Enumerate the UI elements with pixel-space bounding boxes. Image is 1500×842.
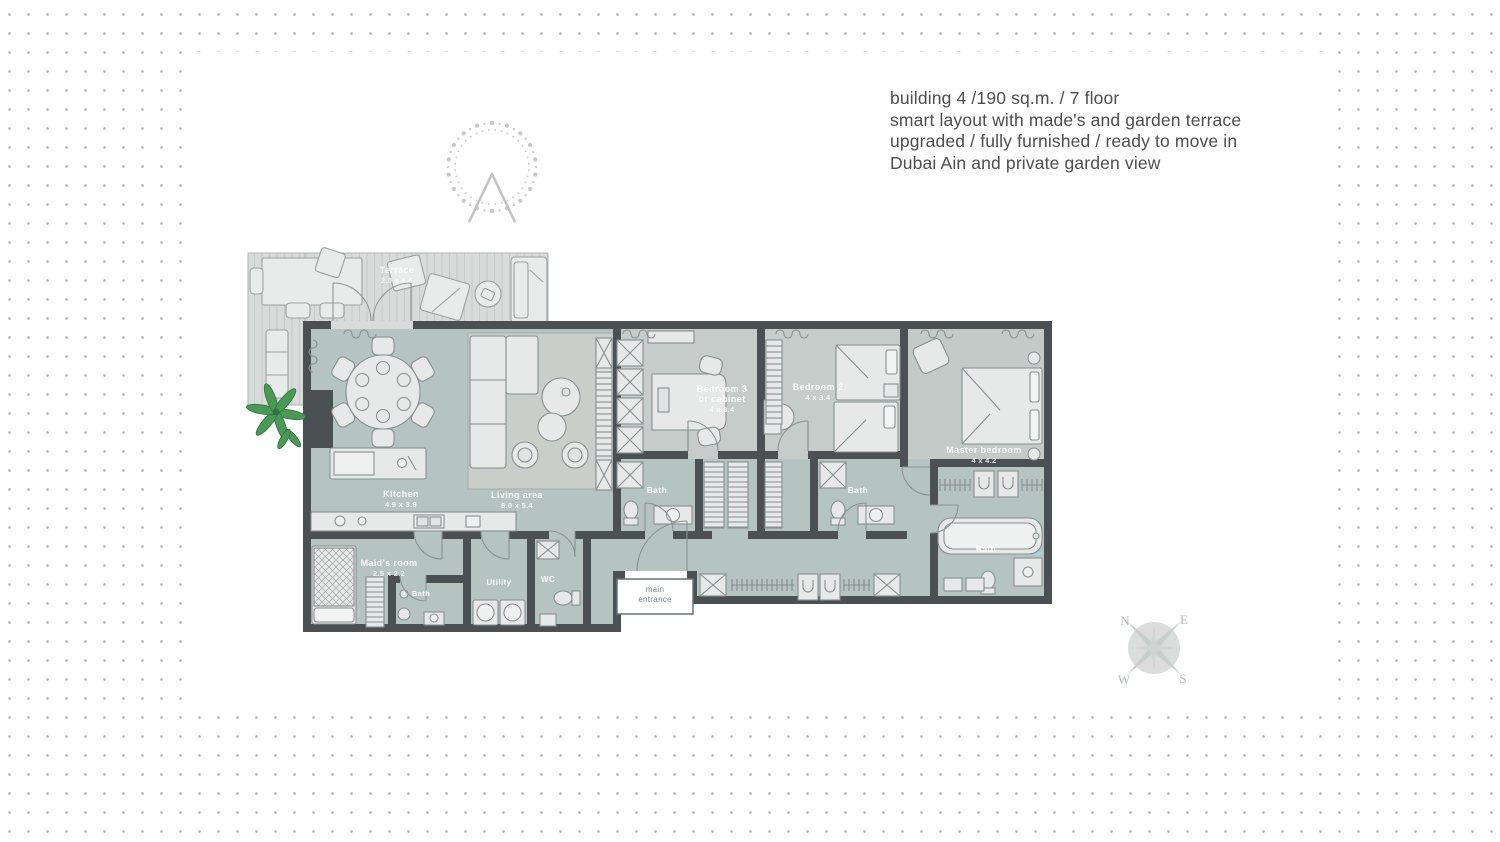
terrace-label: Terrace <box>380 265 415 275</box>
bath2-label: Bath <box>848 485 869 495</box>
compass-s: S <box>1179 671 1186 686</box>
compass-n: N <box>1120 613 1130 628</box>
living-dims: 8.0 x 5.4 <box>501 501 533 510</box>
master-dims: 4 x 4.2 <box>971 456 996 465</box>
bedroom3-label: Bedroom 3 <box>697 384 748 394</box>
bedroom3-dims: 4 x 3.4 <box>709 405 735 414</box>
kitchen-dims: 4.9 x 3.9 <box>385 500 417 509</box>
terrace-dims: 2.0 x 6.6 <box>381 276 413 285</box>
entrance-label-line1: main <box>646 585 665 594</box>
maid-bath-label: Bath <box>412 589 430 598</box>
kitchen-label: Kitchen <box>383 489 419 499</box>
coffee-table <box>542 378 580 416</box>
maids-label: Maid's room <box>360 558 417 568</box>
logo-legs <box>469 174 515 222</box>
master-label: Master bedroom <box>946 445 1022 455</box>
toilet <box>624 501 638 519</box>
toilet <box>831 501 845 519</box>
compass-e: E <box>1180 612 1188 627</box>
master-bath-label: Bath <box>976 544 997 554</box>
entrance-label-line2: entrance <box>638 595 672 604</box>
stool <box>398 608 410 620</box>
sink <box>540 614 556 626</box>
wc-label: WC <box>541 575 555 584</box>
dining-table <box>346 355 420 429</box>
maids-dims: 2.5 x 2.2 <box>373 569 405 578</box>
main-entrance-box: main entrance <box>617 579 693 614</box>
page-background: building 4 /190 sq.m. / 7 floor smart la… <box>0 0 1500 842</box>
sofa <box>470 336 506 468</box>
toilet <box>554 591 572 605</box>
bedroom2-label: Bedroom 2 <box>793 382 844 392</box>
compass-rose: N E W S <box>1118 612 1188 687</box>
compass-w: W <box>1118 672 1131 687</box>
bath1-label: Bath <box>647 485 668 495</box>
sink <box>966 578 984 591</box>
bedroom2-dims: 4 x 3.4 <box>805 393 831 402</box>
ain-dubai-logo-icon <box>447 121 538 222</box>
chaise <box>506 336 538 394</box>
floor-plan: main entrance Terrace 2.0 x 6.6 Kitchen … <box>0 0 1500 842</box>
sink <box>944 578 962 591</box>
utility-label: Utility <box>486 578 511 587</box>
living-label: Living area <box>491 490 544 500</box>
bedroom3-label2: or cabinet <box>698 394 745 404</box>
kitchen-column <box>311 390 333 448</box>
